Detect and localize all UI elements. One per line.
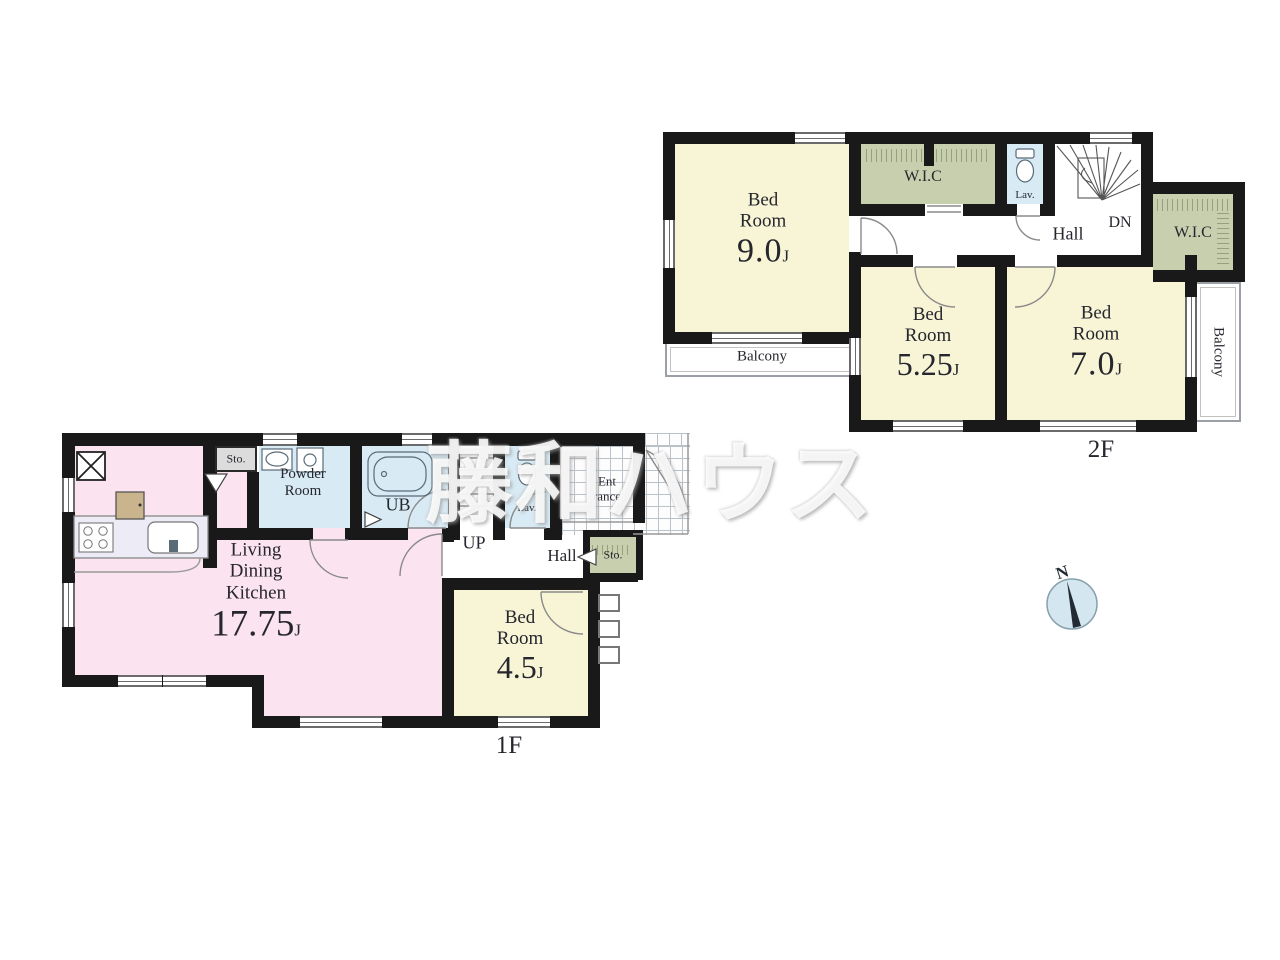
wall <box>995 255 1007 432</box>
window <box>300 716 382 728</box>
floor-label-1f: 1F <box>496 732 522 760</box>
wall <box>442 578 454 728</box>
window <box>62 478 75 512</box>
wall <box>442 578 588 590</box>
window <box>263 433 297 446</box>
wall <box>1057 255 1153 267</box>
window <box>1090 132 1132 144</box>
wall <box>350 433 362 540</box>
label-2f-down: DN <box>1108 214 1131 232</box>
wall <box>203 528 313 540</box>
window <box>893 420 963 432</box>
wall <box>1153 270 1245 282</box>
label-1f-storage-top: Sto. <box>226 452 245 467</box>
window-shutter <box>598 594 620 612</box>
window-shutter <box>598 646 620 664</box>
window-shutter <box>598 620 620 638</box>
label-2f-wic-top: W.I.C <box>904 168 942 186</box>
wall <box>995 204 1017 216</box>
watermark: 藤和ハウス <box>425 414 875 541</box>
wall <box>1043 144 1055 204</box>
wall <box>963 204 995 216</box>
window <box>62 583 75 627</box>
wall <box>247 472 259 528</box>
label-1f-powder-room: Powder Room <box>280 466 326 500</box>
wall <box>663 132 1153 144</box>
label-2f-hall: Hall <box>1053 224 1084 245</box>
wall <box>1040 204 1055 216</box>
floor-label-2f: 2F <box>1088 436 1114 464</box>
label-2f-bedroom-525: Bed Room 5.25J <box>897 304 960 382</box>
wall <box>1233 182 1245 282</box>
wall <box>1185 377 1197 432</box>
wall <box>849 255 913 267</box>
label-1f-ub: UB <box>385 495 410 516</box>
window <box>712 332 802 344</box>
room-1f-ldk <box>264 675 442 716</box>
window <box>663 220 675 268</box>
wall <box>62 433 75 687</box>
wall <box>995 144 1007 204</box>
label-2f-balcony-south: Balcony <box>737 349 787 366</box>
floor-plan-page: Bed Room 9.0J Bed Room 5.25J Bed Room 7.… <box>0 0 1280 960</box>
wall <box>1141 132 1153 267</box>
window <box>1185 297 1197 377</box>
window <box>1040 420 1136 432</box>
compass-north-label: N <box>1054 561 1072 583</box>
compass-icon: N <box>1047 561 1097 629</box>
label-1f-bedroom-45: Bed Room 4.5J <box>497 607 544 685</box>
closet-rod-icon <box>1157 199 1229 211</box>
window <box>163 675 206 687</box>
label-1f-hall: Hall <box>547 546 576 566</box>
wall <box>345 528 408 540</box>
room-1f-ldk <box>217 472 247 528</box>
room-2f-hall <box>861 216 1141 255</box>
window <box>795 132 845 144</box>
window <box>849 338 861 375</box>
window <box>498 716 550 728</box>
label-2f-wic-right: W.I.C <box>1174 224 1212 242</box>
label-2f-balcony-east: Balcony <box>1210 327 1227 377</box>
wall <box>924 144 934 166</box>
label-2f-lavatory: Lav. <box>1015 189 1034 201</box>
window <box>118 675 162 687</box>
label-1f-storage-hall: Sto. <box>603 548 622 563</box>
wall <box>849 204 925 216</box>
label-1f-ldk: Living Dining Kitchen 17.75J <box>211 539 301 644</box>
label-2f-bedroom-9: Bed Room 9.0J <box>737 190 789 271</box>
wall <box>1153 182 1245 194</box>
closet-rod-icon <box>1217 212 1229 264</box>
label-2f-bedroom-7: Bed Room 7.0J <box>1070 303 1122 384</box>
room-2f-stairs <box>1055 144 1141 216</box>
